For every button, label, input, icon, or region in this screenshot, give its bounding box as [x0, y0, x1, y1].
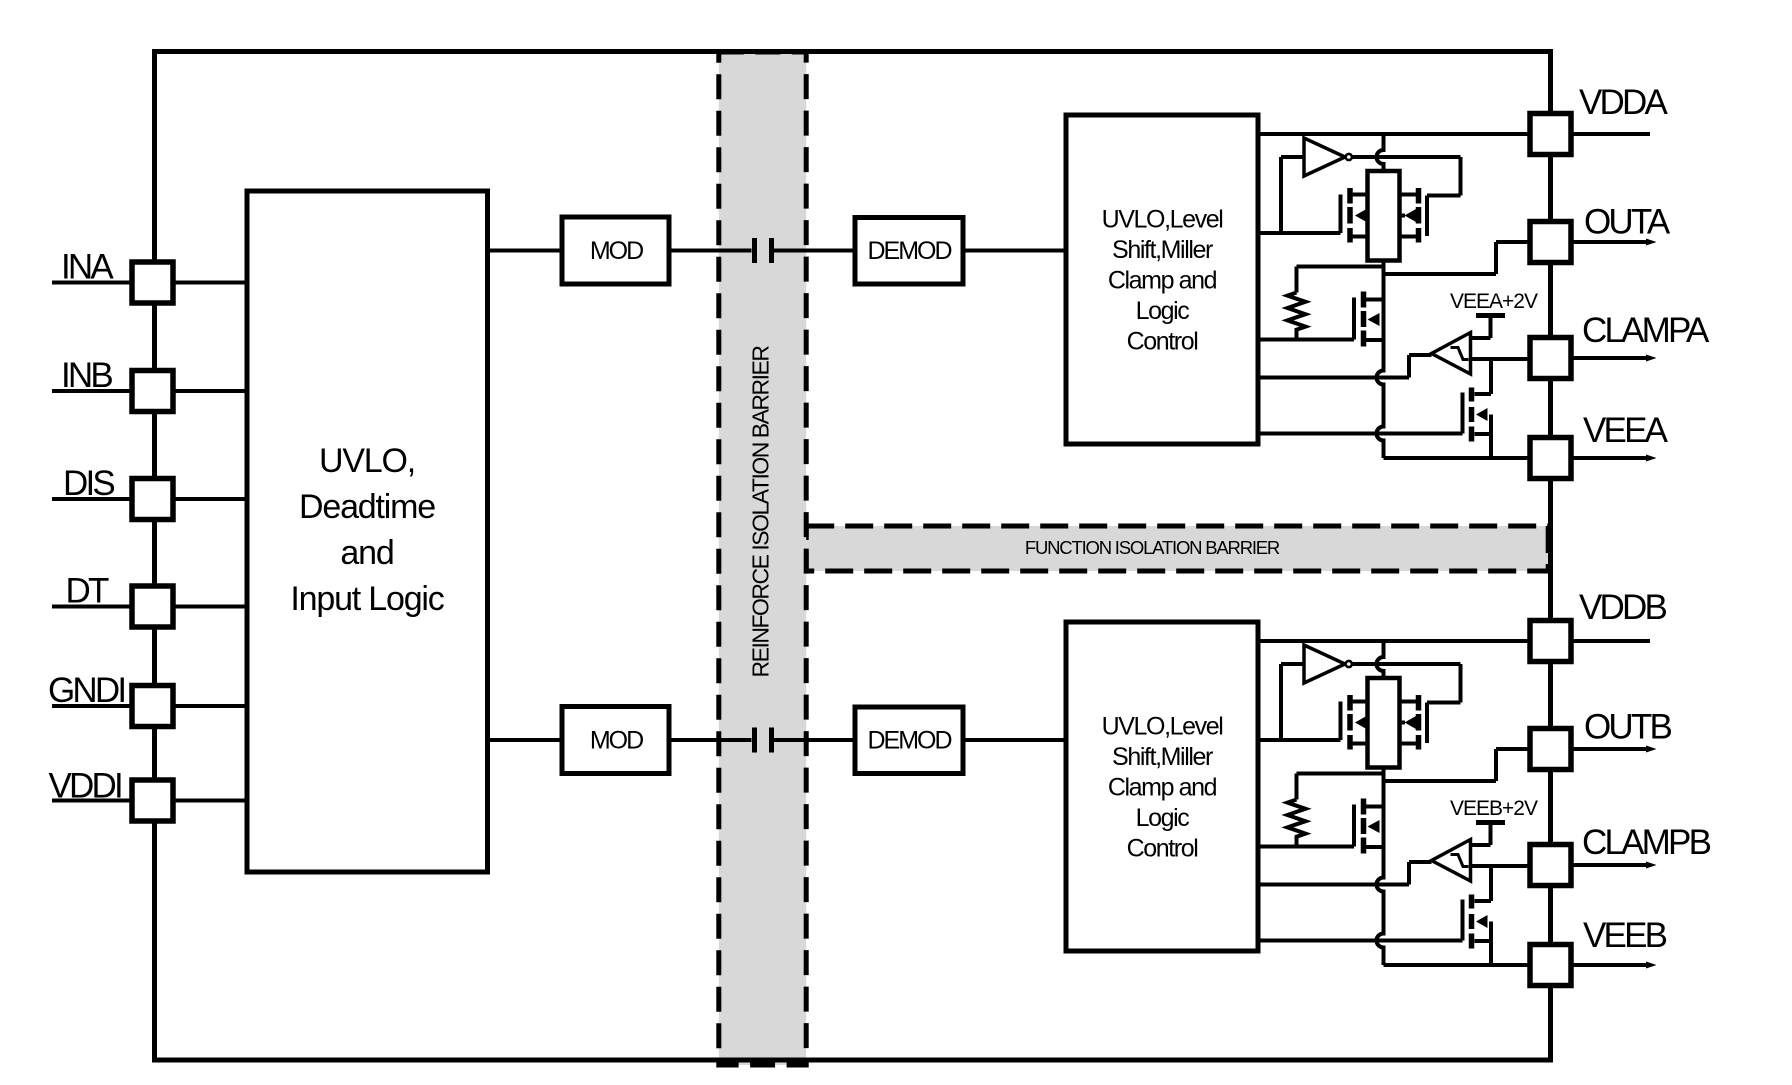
- svg-text:Deadtime: Deadtime: [299, 488, 435, 526]
- svg-text:VDDA: VDDA: [1579, 83, 1668, 122]
- svg-text:FUNCTION ISOLATION BARRIER: FUNCTION ISOLATION BARRIER: [1025, 537, 1280, 558]
- svg-text:VDDI: VDDI: [49, 767, 121, 806]
- svg-text:Logic: Logic: [1136, 804, 1190, 832]
- svg-text:and: and: [340, 534, 393, 572]
- svg-text:VDDB: VDDB: [1579, 588, 1666, 627]
- svg-text:VEEB+2V: VEEB+2V: [1450, 797, 1538, 820]
- svg-text:GNDI: GNDI: [48, 671, 124, 710]
- svg-text:Clamp and: Clamp and: [1108, 267, 1217, 295]
- svg-text:OUTB: OUTB: [1584, 708, 1671, 747]
- svg-text:UVLO,Level: UVLO,Level: [1102, 713, 1223, 741]
- svg-text:DEMOD: DEMOD: [867, 727, 951, 755]
- svg-text:Control: Control: [1127, 328, 1198, 356]
- svg-text:DIS: DIS: [63, 464, 114, 503]
- svg-text:Clamp and: Clamp and: [1108, 774, 1217, 802]
- svg-text:CLAMPA: CLAMPA: [1582, 311, 1710, 350]
- svg-text:DT: DT: [66, 572, 109, 611]
- svg-text:UVLO,: UVLO,: [319, 442, 415, 480]
- svg-text:VEEB: VEEB: [1583, 916, 1667, 955]
- svg-text:DEMOD: DEMOD: [867, 237, 951, 265]
- svg-text:Shift,Miller: Shift,Miller: [1112, 743, 1213, 771]
- svg-text:MOD: MOD: [590, 237, 643, 265]
- svg-text:UVLO,Level: UVLO,Level: [1102, 206, 1223, 234]
- svg-text:Shift,Miller: Shift,Miller: [1112, 236, 1213, 264]
- svg-text:VEEA+2V: VEEA+2V: [1450, 290, 1538, 313]
- svg-text:Logic: Logic: [1136, 297, 1190, 325]
- svg-text:INA: INA: [61, 248, 114, 287]
- svg-text:REINFORCE ISOLATION BARRIER: REINFORCE ISOLATION BARRIER: [748, 346, 774, 678]
- svg-text:Control: Control: [1127, 835, 1198, 863]
- svg-text:MOD: MOD: [590, 727, 643, 755]
- svg-text:CLAMPB: CLAMPB: [1582, 823, 1711, 862]
- svg-text:INB: INB: [61, 356, 112, 395]
- svg-text:VEEA: VEEA: [1583, 411, 1669, 450]
- svg-text:OUTA: OUTA: [1584, 203, 1671, 242]
- svg-text:Input Logic: Input Logic: [290, 580, 444, 618]
